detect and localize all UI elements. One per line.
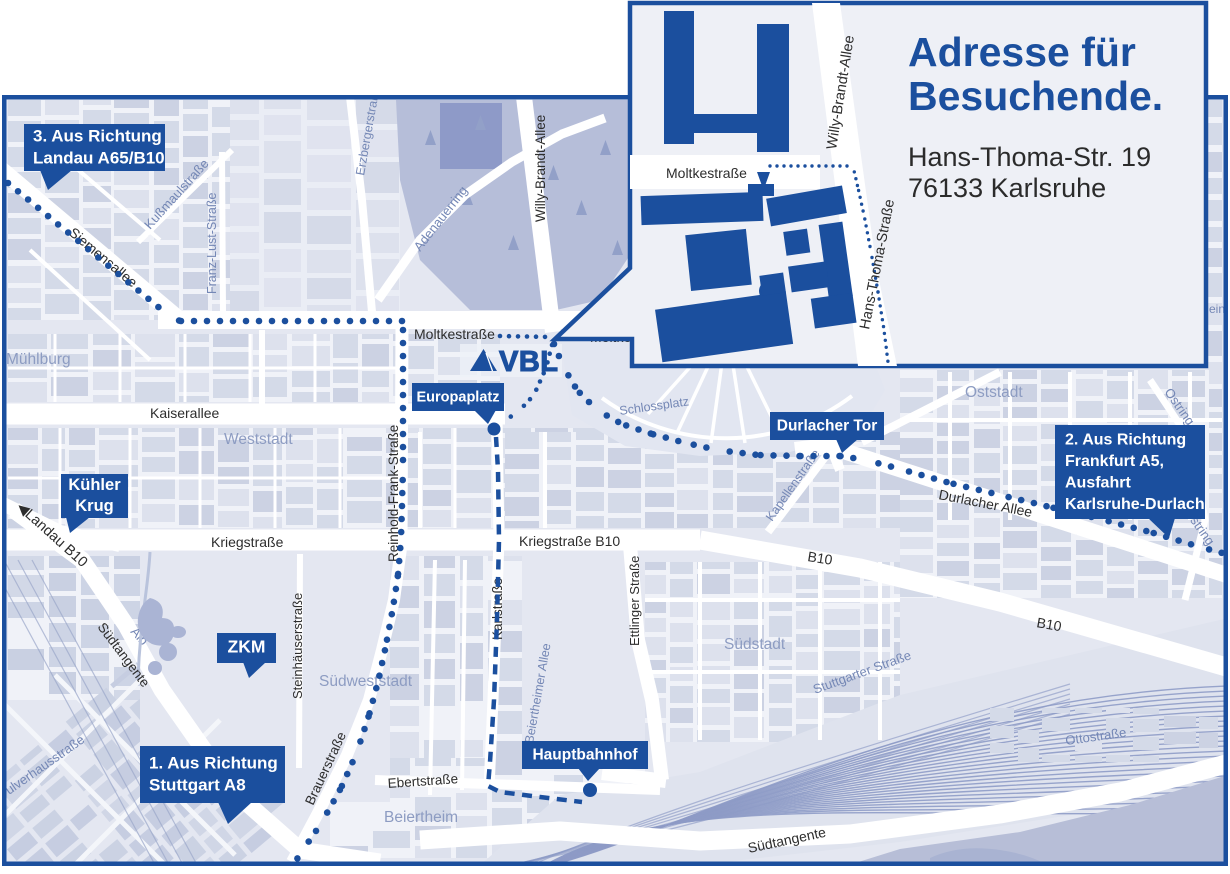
svg-text:Kühler: Kühler	[68, 476, 121, 494]
svg-text:Adresse für: Adresse für	[908, 29, 1136, 75]
svg-text:Hans-Thoma-Str. 19: Hans-Thoma-Str. 19	[908, 142, 1151, 172]
svg-text:VBL: VBL	[499, 346, 559, 378]
svg-text:Ettlinger Straße: Ettlinger Straße	[627, 556, 642, 646]
svg-text:3. Aus Richtung: 3. Aus Richtung	[33, 126, 162, 145]
svg-text:Weststadt: Weststadt	[224, 431, 293, 448]
svg-text:1. Aus Richtung: 1. Aus Richtung	[149, 753, 278, 772]
svg-text:Frankfurt A5,: Frankfurt A5,	[1065, 453, 1164, 470]
svg-text:Kaiserallee: Kaiserallee	[150, 405, 219, 421]
svg-text:Reinhold-Frank-Straße: Reinhold-Frank-Straße	[386, 425, 401, 562]
svg-text:Südstadt: Südstadt	[724, 636, 786, 653]
svg-text:Krug: Krug	[75, 497, 114, 515]
svg-text:Landau A65/B10: Landau A65/B10	[33, 148, 165, 167]
svg-text:Durlacher Tor: Durlacher Tor	[777, 418, 878, 435]
svg-text:Hauptbahnhof: Hauptbahnhof	[532, 747, 638, 764]
svg-text:Franz-Lust-Straße: Franz-Lust-Straße	[205, 193, 219, 294]
svg-text:Besuchende.: Besuchende.	[908, 73, 1163, 119]
svg-text:76133 Karlsruhe: 76133 Karlsruhe	[908, 173, 1106, 203]
svg-text:ein: ein	[1209, 302, 1225, 316]
svg-text:Steinhäuserstraße: Steinhäuserstraße	[290, 593, 305, 699]
svg-text:Willy-Brandt-Allee: Willy-Brandt-Allee	[533, 115, 548, 222]
svg-text:Moltkestraße: Moltkestraße	[414, 326, 495, 342]
svg-text:Karlsruhe-Durlach: Karlsruhe-Durlach	[1065, 496, 1205, 513]
svg-text:Stuttgart A8: Stuttgart A8	[149, 775, 246, 794]
svg-text:Kriegstraße B10: Kriegstraße B10	[519, 533, 620, 549]
svg-text:Ausfahrt: Ausfahrt	[1065, 475, 1131, 492]
svg-text:2. Aus Richtung: 2. Aus Richtung	[1065, 432, 1186, 449]
svg-text:Südweststadt: Südweststadt	[319, 673, 413, 690]
svg-text:Mühlburg: Mühlburg	[6, 351, 71, 368]
svg-text:Beiertheim: Beiertheim	[384, 809, 458, 826]
svg-text:Kriegstraße: Kriegstraße	[211, 534, 284, 550]
svg-text:Moltkestraße: Moltkestraße	[666, 165, 747, 181]
svg-text:Oststadt: Oststadt	[965, 384, 1023, 401]
svg-text:ZKM: ZKM	[228, 637, 266, 657]
svg-text:Europaplatz: Europaplatz	[417, 390, 500, 406]
